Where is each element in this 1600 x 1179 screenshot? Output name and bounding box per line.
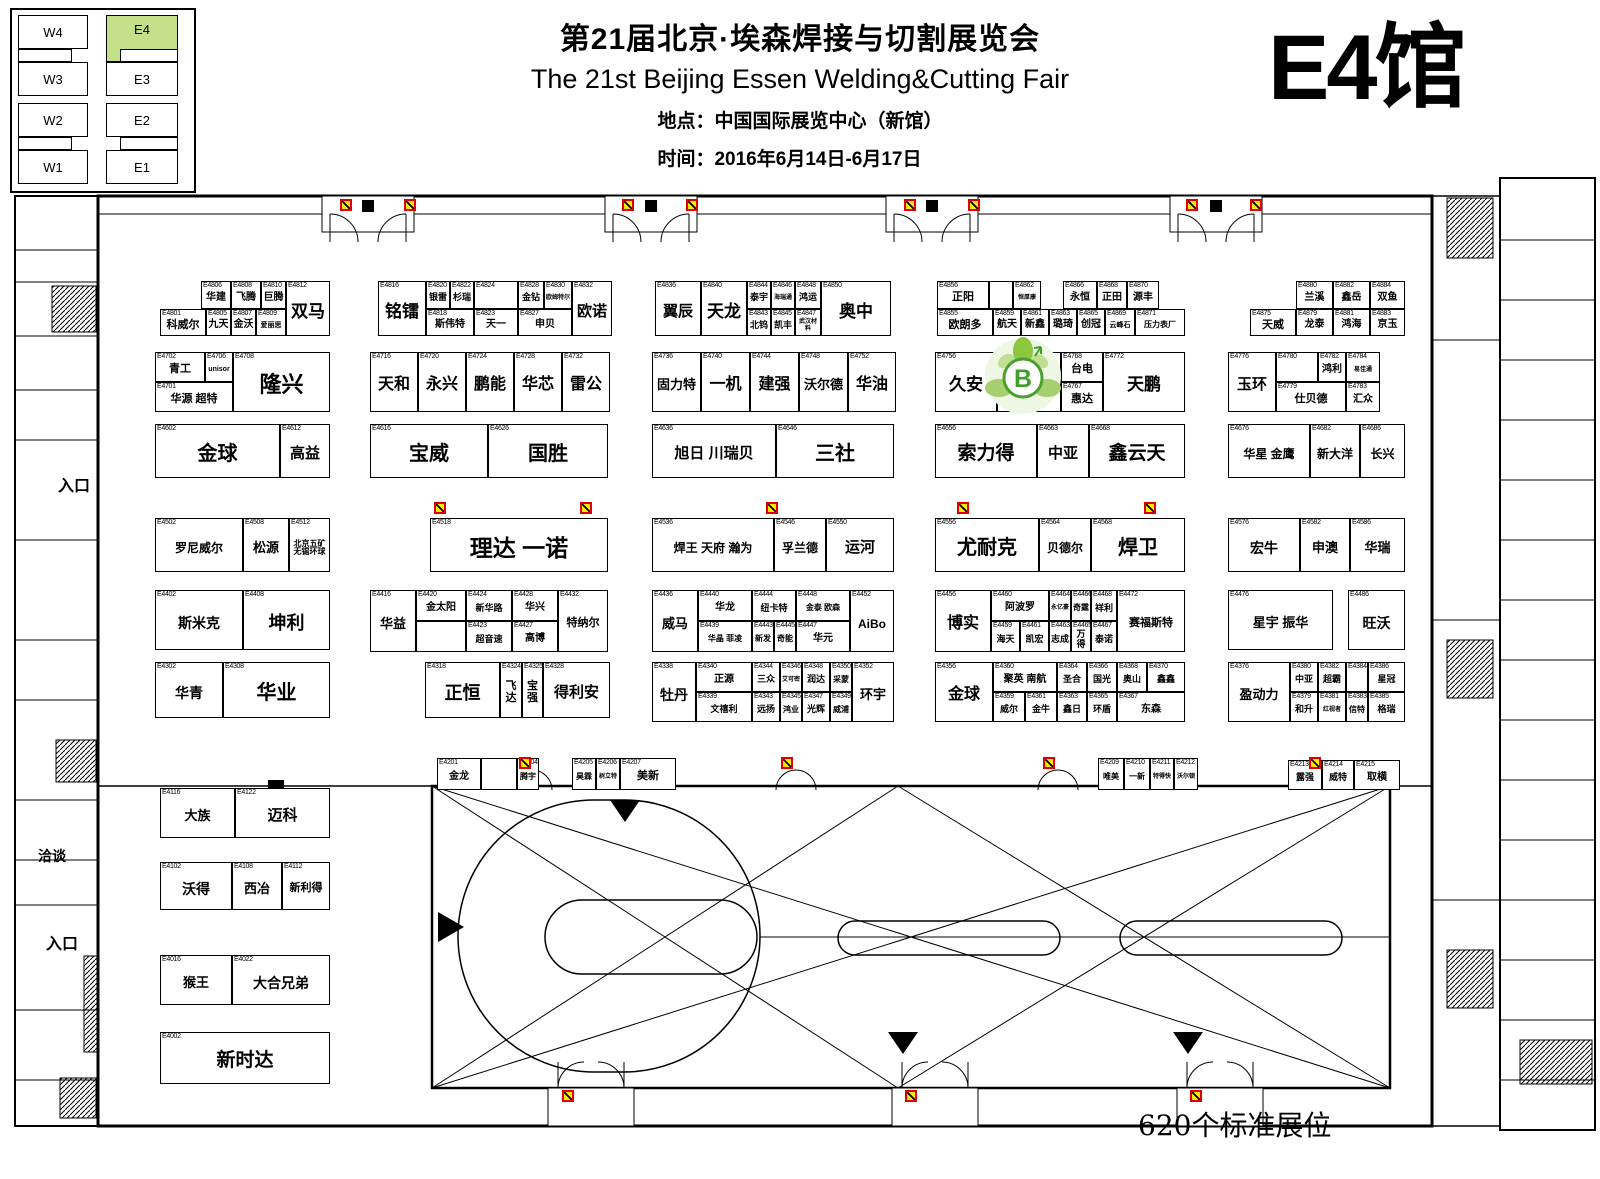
booth-name: 九天 [207,316,230,335]
booth-E4546: E4546孚兰德 [774,518,826,572]
booth-E4456: E4456博实 [935,590,991,652]
booth-name: 天鹏 [1104,359,1184,411]
booth-E4476: E4476星宇 振华 [1228,590,1333,650]
booth-E4508: E4508松源 [243,518,289,572]
fire-hydrant-icon [340,199,352,211]
booth-name: 旭日 川瑞贝 [653,431,775,477]
hall-label: E4馆 [1268,22,1464,114]
booth-name: 美新 [621,765,675,789]
booth-E4460: E4460阿波罗 [991,590,1049,621]
minimap-hall-E2: E2 [106,103,178,137]
booth-name: 翼辰 [656,288,700,335]
booth-name: 中亚 [1291,669,1317,691]
booth-name: 文禧利 [697,699,751,721]
booth-E4866: E4866永恒 [1063,281,1097,309]
fire-hydrant-icon [580,502,592,514]
booth-empty [481,758,517,790]
booth-E4861: E4861新鑫 [1021,309,1049,336]
booth-name: 新鑫 [1022,316,1048,335]
booth-E4447: E4447华元 [796,621,850,652]
booth-E4783: E4783汇众 [1346,382,1380,412]
booth-name: 天威 [1251,316,1295,335]
booth-E4210: E4210一新 [1124,758,1150,790]
booth-E4805: E4805九天 [206,309,231,336]
booth-name: 飞腾 [232,288,260,308]
booth-name: 银雷 [427,288,449,308]
booth-name: 西冶 [233,869,281,909]
booth-id: E4824 [476,281,495,290]
booth-E4827: E4827申贝 [518,309,572,336]
booth-name: 仕贝德 [1277,389,1345,411]
booth-name: 环盾 [1088,699,1116,721]
booth-name: 圣合 [1058,669,1086,691]
booth-name: 欧朗多 [938,316,992,335]
booth-E4468: E4468祥利 [1091,590,1117,621]
booth-E4875: E4875天威 [1250,309,1296,336]
booth-E4367: E4367东森 [1117,692,1185,722]
booth-name: 威特 [1323,767,1353,789]
fire-hydrant-icon [1309,757,1321,769]
booth-E4845: E4845凯丰 [771,309,795,336]
booth-name: 泰宇 [748,288,770,308]
minimap-hall-W4: W4 [18,15,88,49]
booth-name: 贝德尔 [1040,525,1090,571]
booth-E4812: E4812双马 [286,281,330,336]
booth-name: 聚英 南航 [994,669,1056,691]
booth-E4383: E4383信特 [1346,692,1368,722]
booth-name: 鑫云天 [1090,431,1184,477]
booth-E4379: E4379和升 [1290,692,1318,722]
booth-E4828: E4828金钻 [518,281,544,309]
booth-name: 威尔 [994,699,1024,721]
booth-E4122: E4122迈科 [235,788,330,838]
booth-name: 远扬 [753,699,779,721]
booth-name: 永兴 [419,359,465,411]
booth-name: 国光 [1088,669,1116,691]
booth-E4676: E4676华星 金鹰 [1228,424,1310,478]
booth-E4846: E4846海瑞通 [771,281,795,309]
fire-hydrant-icon [519,757,531,769]
booth-E4576: E4576宏牛 [1228,518,1300,572]
booth-E4869: E4869云峰石 [1105,309,1135,336]
booth-E4801: E4801科威尔 [160,309,206,336]
booth-E4381: E4381红视者 [1318,692,1346,722]
booth-E4486: E4486旺沃 [1348,590,1405,650]
booth-name: 华建 [202,288,230,308]
floor-plan: W4 W3 W2 W1 E4 E3 E2 E1 第21届北京·埃森焊接与切割展览… [0,0,1600,1179]
booth-name: 尤耐克 [936,525,1038,571]
booth-E4868: E4868正田 [1097,281,1127,309]
booth-E4682: E4682新大洋 [1310,424,1360,478]
fire-hydrant-icon [404,199,416,211]
booth-name: 鑫鑫 [1148,669,1184,691]
booth-E4663: E4663中亚 [1037,424,1089,478]
booth-name: 东森 [1118,699,1184,721]
booth-E4325: E4325宝强 [522,662,543,718]
booth-name: 博实 [936,597,990,651]
booth-E4308: E4308华业 [223,662,330,718]
fire-hydrant-icon [905,1090,917,1102]
booth-name: 华源 超特 [156,389,232,411]
fire-hydrant-icon [904,199,916,211]
booth-name: 天和 [371,359,417,411]
booth-name: 新利得 [283,869,329,909]
booth-E4859: E4859航天 [993,309,1021,336]
booth-E4832: E4832欧诺 [572,281,612,336]
booth-name: 金太阳 [417,597,465,620]
booth-name: 一新 [1125,765,1149,789]
booth-E4432: E4432特纳尔 [558,590,608,652]
booth-E4850: E4850奥中 [821,281,891,336]
booth-name: 鸿运 [796,288,820,308]
booth-E4443: E4443新发 [752,621,774,652]
booth-E4616: E4616宝威 [370,424,488,478]
booth-E4612: E4612高益 [280,424,330,478]
booth-E4536: E4536焊王 天府 瀚为 [652,518,774,572]
booth-name: 国胜 [489,431,607,477]
booth-E4318: E4318正恒 [425,662,500,718]
booth-name: 青工 [156,359,204,381]
booth-E4732: E4732雷公 [562,352,610,412]
booth-E4344: E4344三众 [752,662,780,692]
hall-minimap: W4 W3 W2 W1 E4 E3 E2 E1 [10,8,196,193]
booth-name: 凯宏 [1021,628,1048,651]
booth-name: 云峰石 [1106,316,1134,335]
booth-name: 赛福斯特 [1118,597,1184,651]
booth-name: 隆兴 [234,359,329,411]
booth-E4512: E4512北京五矿 无锡环球 [289,518,330,572]
booth-E4424: E4424新华路 [466,590,512,621]
booth-E4856: E4856正阳 [937,281,989,309]
booth-E4382: E4382超霸 [1318,662,1346,692]
fire-hydrant-icon [686,199,698,211]
booth-name: 一机 [702,359,749,411]
booth-E4347: E4347光辉 [802,692,830,722]
booth-name: 鹏能 [467,359,513,411]
booth-name: 金牛 [1026,699,1056,721]
booth-E4463: E4463志成 [1049,621,1071,652]
booth-id: E4780 [1278,352,1297,361]
booth-E4459: E4459海天 [991,621,1020,652]
booth-name: 杉瑞 [451,288,473,308]
booth-E4863: E4863璐琦 [1049,309,1077,336]
booth-E4108: E4108西冶 [232,862,282,910]
booth-name: 露强 [1289,767,1321,789]
booth-E4502: E4502罗尼威尔 [155,518,243,572]
fire-hydrant-icon [562,1090,574,1102]
booth-E4550: E4550运河 [826,518,894,572]
booth-E4464: E4464永亿豪 [1049,590,1071,621]
svg-text:B: B [1014,365,1032,393]
booth-name: 鸿业 [781,699,801,721]
booth-id: E4384 [1348,662,1367,671]
booth-name: 建强 [751,359,798,411]
booth-E4779: E4779仕贝德 [1276,382,1346,412]
booth-E4359: E4359威尔 [993,692,1025,722]
booth-E4444: E4444纽卡特 [752,590,796,621]
booth-name: 沃尔德 [800,359,847,411]
booth-name: 武汉材料 [796,316,820,335]
booth-E4768: E4768台电 [1061,352,1103,382]
fire-hydrant-icon [1043,757,1055,769]
booth-E4452: E4452AiBo [850,590,894,652]
booth-name: 北钨 [748,316,770,335]
booth-E4586: E4586华瑞 [1350,518,1405,572]
booth-E4345: E4345鸿业 [780,692,802,722]
booth-E4445: E4445奇能 [774,621,796,652]
booth-name: 泰诺 [1092,628,1116,651]
booth-E4668: E4668鑫云天 [1089,424,1185,478]
booth-E4361: E4361金牛 [1025,692,1057,722]
booth-name: 惠达 [1062,389,1102,411]
booth-E4720: E4720永兴 [418,352,466,412]
booth-name: 双鱼 [1371,288,1404,308]
booth-name: 万得 [1072,628,1090,651]
booth-name: 华益 [371,597,415,651]
booth-E4212: E4212沃尔顿 [1174,758,1198,790]
booth-name: 采蒙 [831,669,851,691]
booth-name: 华星 金鹰 [1229,431,1309,477]
booth-E4102: E4102沃得 [160,862,232,910]
booth-E4364: E4364圣合 [1057,662,1087,692]
booth-E4881: E4881鸿海 [1333,309,1370,336]
booth-E4022: E4022大合兄弟 [232,955,330,1005]
booth-E4708: E4708隆兴 [233,352,330,412]
booth-E4879: E4879龙泰 [1296,309,1333,336]
booth-name: 纽卡特 [753,597,795,620]
booth-E4518: E4518理达 一诺 [430,518,608,572]
booth-name: 欧姆特尔 [545,288,571,308]
booth-name: 金泰 欧森 [797,597,849,620]
booth-name: 祥利 [1092,597,1116,620]
booth-name: 华油 [849,359,895,411]
booth-E4847: E4847武汉材料 [795,309,821,336]
booth-E4448: E4448金泰 欧森 [796,590,850,621]
booth-E4440: E4440华龙 [698,590,752,621]
booth-E4428: E4428华兴 [512,590,558,621]
booth-name: 新大洋 [1311,431,1359,477]
booth-name: 和升 [1291,699,1317,721]
booth-name: 宏牛 [1229,525,1299,571]
booth-E4343: E4343远扬 [752,692,780,722]
booth-name: 鑫岳 [1334,288,1369,308]
booth-E4420: E4420金太阳 [416,590,466,621]
booth-name: 科威尔 [161,316,205,335]
fire-hydrant-icon [1186,199,1198,211]
booth-E4880: E4880兰溪 [1296,281,1333,309]
booth-name: 理达 一诺 [431,525,607,571]
booth-E4656: E4656索力得 [935,424,1037,478]
minimap-notch [120,137,178,150]
booth-E4467: E4467泰诺 [1091,621,1117,652]
booth-E4752: E4752华油 [848,352,896,412]
booth-E4408: E4408坤利 [243,590,330,650]
booth-E4883: E4883京玉 [1370,309,1405,336]
booth-name: 光辉 [803,699,829,721]
booth-E4201: E4201金龙 [437,758,481,790]
booth-E4209: E4209唯美 [1098,758,1124,790]
booth-name: 志成 [1050,628,1070,651]
booth-E4772: E4772天鹏 [1103,352,1185,412]
booth-E4214: E4214威特 [1322,760,1354,790]
booth-E4702: E4702青工 [155,352,205,382]
booth-name: 永恒 [1064,288,1096,308]
booth-name: 罗尼威尔 [156,525,242,571]
booth-E4402: E4402斯米克 [155,590,243,650]
booth-E4870: E4870源丰 [1127,281,1159,309]
booth-name: 飞达 [501,669,521,717]
booth-E4744: E4744建强 [750,352,799,412]
booth-E4376: E4376盈动力 [1228,662,1290,722]
booth-name: 孚兰德 [775,525,825,571]
booth-name: 正阳 [938,288,988,308]
booth-E4386: E4386星冠 [1368,662,1405,692]
booth-E4865: E4865创冠 [1077,309,1105,336]
booth-name: 高益 [281,431,329,477]
booth-name: 华兴 [513,597,557,620]
booth-E4211: E4211特得快 [1150,758,1174,790]
minimap-notch [120,49,178,62]
entrance-label-top: 入口 [58,472,90,496]
booth-name: 坤利 [244,597,329,649]
booth-E4848: E4848鸿运 [795,281,821,309]
booth-E4465: E4465万得 [1071,621,1091,652]
booth-name: 猴王 [161,962,231,1004]
fair-title-en: The 21st Beijing Essen Welding&Cutting F… [440,64,1160,95]
booth-name: 玉环 [1229,359,1275,411]
booth-E4350: E4350采蒙 [830,662,852,692]
fire-hydrant-icon [766,502,778,514]
booth-E4862: E4862恒厚康 [1013,281,1041,309]
booth-E4602: E4602金球 [155,424,280,478]
booth-E4368: E4368奥山 [1117,662,1147,692]
booth-E4882: E4882鑫岳 [1333,281,1370,309]
booth-name: 金球 [936,669,992,721]
minimap-hall-E1: E1 [106,150,178,184]
booth-name: 金球 [156,431,279,477]
booth-E4380: E4380中亚 [1290,662,1318,692]
booth-name: 兰溪 [1297,288,1332,308]
booth-empty [989,281,1013,309]
booth-name: 润达 [803,669,829,691]
booth-E4423: E4423超音速 [466,621,512,652]
booth-name: 申澳 [1301,525,1349,571]
booth-name: 中亚 [1038,431,1088,477]
booth-name: 星冠 [1369,669,1404,691]
fair-location: 地点：中国国际展览中心（新馆） [657,103,942,141]
booth-E4806: E4806华建 [201,281,231,309]
booth-name: 双马 [287,288,329,335]
booth-name: 特纳尔 [559,597,607,651]
booth-name: 凯丰 [772,316,794,335]
booth-E4427: E4427高博 [512,621,558,652]
booth-name: 申贝 [519,316,571,335]
minimap-hall-W1: W1 [18,150,88,184]
booth-E4436: E4436威马 [652,590,698,652]
booth-E4636: E4636旭日 川瑞贝 [652,424,776,478]
booth-name: 特得快 [1151,765,1173,789]
booth-name: 信特 [1347,699,1367,721]
booth-E4701: E4701华源 超特 [155,382,233,412]
booth-name: 昊霖 [573,765,595,789]
booth-name: 三社 [777,431,893,477]
booth-name: 红视者 [1319,699,1345,721]
booth-E4646: E4646三社 [776,424,894,478]
booth-E4830: E4830欧姆特尔 [544,281,572,309]
meeting-area-label: 洽谈 [38,846,66,866]
booth-E4822: E4822杉瑞 [450,281,474,309]
booth-name: 恒厚康 [1014,288,1040,308]
booth-name: 宝威 [371,431,487,477]
booth-E4871: E4871压力表厂 [1135,309,1185,336]
booth-E4840: E4840天龙 [701,281,747,336]
fire-hydrant-icon [968,199,980,211]
booth-name: 新发 [753,628,773,651]
booth-name: 天一 [475,316,517,335]
booth-name: 牡丹 [653,669,695,721]
booth-name: 华晶 菲凌 [699,628,751,651]
fire-hydrant-icon [1190,1090,1202,1102]
booth-name: 旺沃 [1349,597,1404,649]
booth-name: 海天 [992,628,1019,651]
booth-name: AiBo [851,597,893,651]
booth-E4324: E4324飞达 [500,662,522,718]
booth-E4836: E4836翼辰 [655,281,701,336]
booth-E4348: E4348润达 [802,662,830,692]
booth-name: 沃尔顿 [1175,765,1197,789]
booth-E4824: E4824 [474,281,518,309]
booth-E4384: E4384 [1346,662,1368,692]
fire-hydrant-icon [1144,502,1156,514]
booth-E4461: E4461凯宏 [1020,621,1049,652]
booth-E4784: E4784易佳通 [1346,352,1380,382]
booth-E4352: E4352环宇 [852,662,894,722]
booth-name: 格瑞 [1369,699,1404,721]
booth-name: 华元 [797,628,849,651]
booth-name: 汇众 [1347,389,1379,411]
fire-hydrant-icon [781,757,793,769]
fire-hydrant-icon [1250,199,1262,211]
booth-E4568: E4568焊卫 [1091,518,1185,572]
booth-name: 唯美 [1099,765,1123,789]
booth-name: 龙泰 [1297,316,1332,335]
booth-E4844: E4844泰宇 [747,281,771,309]
booth-name: 星宇 振华 [1229,597,1332,649]
booth-name: 运河 [827,525,893,571]
booth-name: 取横 [1355,767,1399,789]
booth-name: 焊卫 [1092,525,1184,571]
booth-E4776: E4776玉环 [1228,352,1276,412]
booth-name: 铭镭 [379,288,425,335]
booth-E4843: E4843北钨 [747,309,771,336]
booth-E4748: E4748沃尔德 [799,352,848,412]
booth-name: 艾可密 [781,669,801,691]
booth-name: 威浦 [831,699,851,721]
booth-name: unisor [206,359,232,381]
booth-name: 华芯 [515,359,561,411]
booth-name: 焊王 天府 瀚为 [653,525,773,571]
booth-name: 鸿海 [1334,316,1369,335]
booth-name: 索力得 [936,431,1036,477]
booth-E4556: E4556尤耐克 [935,518,1039,572]
booth-name: 华瑞 [1351,525,1404,571]
booth-name: 阿波罗 [992,597,1048,620]
booth-E4349: E4349威浦 [830,692,852,722]
booth-E4767: E4767惠达 [1061,382,1103,412]
booth-name: 三众 [753,669,779,691]
booth-name: 超霸 [1319,669,1345,691]
booth-count-label: 620个标准展位 [1138,1104,1331,1144]
